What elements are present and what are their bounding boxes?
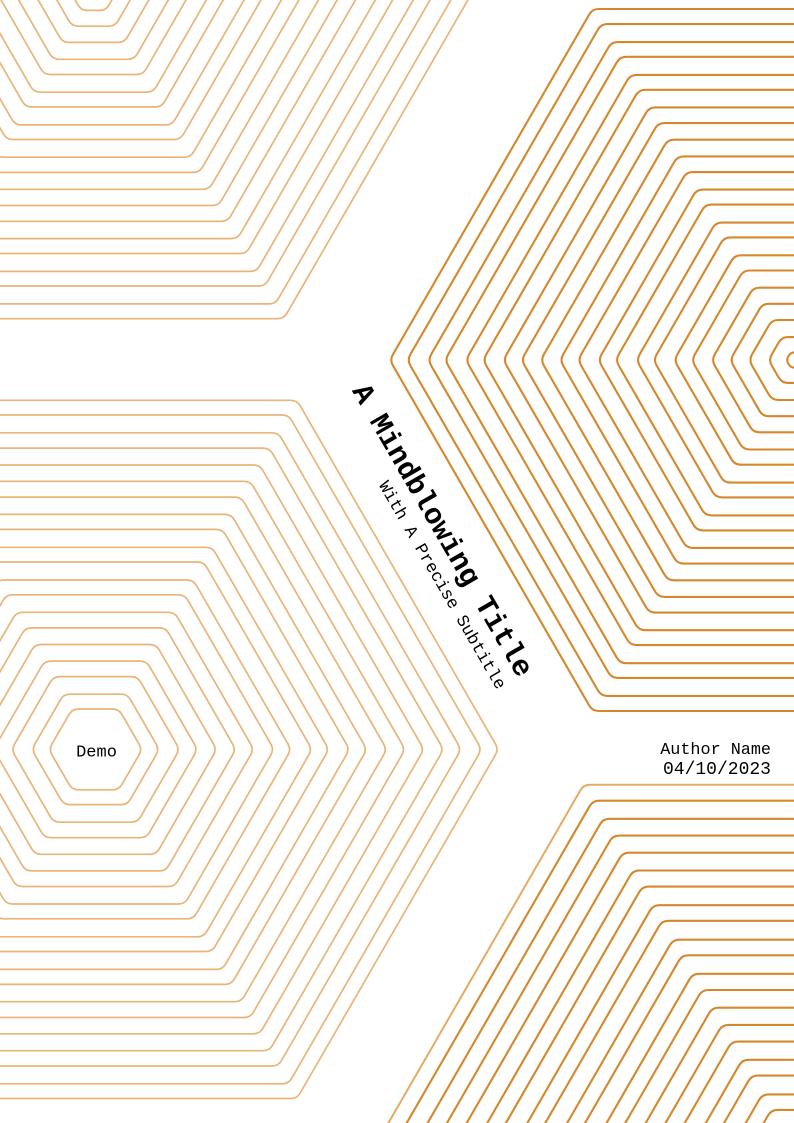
svg-text:Author Name: Author Name xyxy=(660,741,771,760)
svg-text:04/10/2023: 04/10/2023 xyxy=(663,760,771,780)
svg-text:Demo: Demo xyxy=(76,744,117,763)
